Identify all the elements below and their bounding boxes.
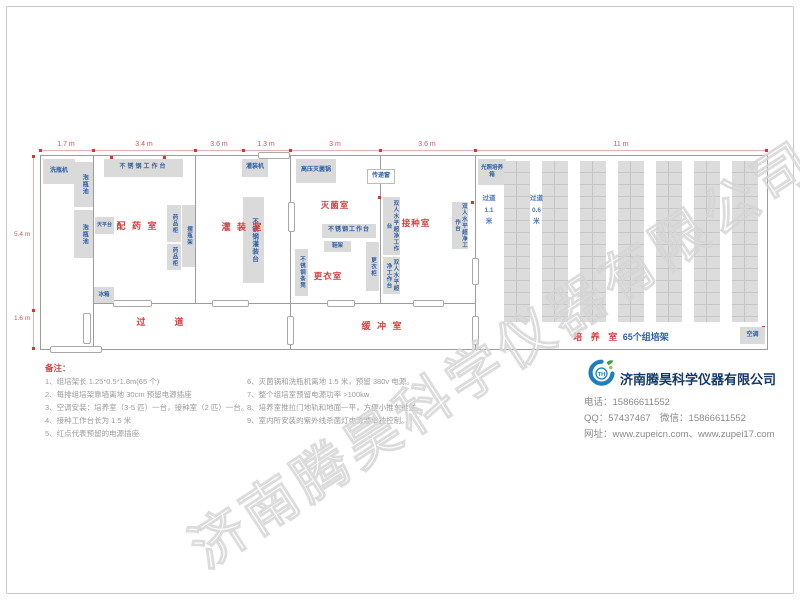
soaking-pool: 泡瓶池 — [74, 162, 93, 207]
steel-filling-table: 不锈钢灌装台 — [243, 197, 264, 283]
dimension-tick — [32, 309, 35, 312]
culture-rack — [542, 161, 568, 322]
locker: 更衣柜 — [366, 242, 379, 291]
room-label-changing: 更衣室 — [290, 270, 366, 282]
wall-right — [767, 155, 768, 350]
room-label-sterilize: 灭菌室 — [290, 199, 380, 211]
note-item: 6、灭菌锅和洗瓶机离地 1.5 米，预留 380v 电源。 — [247, 376, 414, 387]
floor-plan: 1.7 m 3.4 m 3.6 m 1.3 m 3 m 3.6 m 11 m 5… — [0, 0, 800, 600]
note-item: 4、接种工作台长为 1.5 米 — [45, 415, 131, 426]
dimension-tick — [32, 347, 35, 350]
steel-worktable: 不锈钢工作台 — [104, 159, 183, 177]
power-socket-dot — [471, 201, 474, 204]
room-label-prep: 配 药 室 — [93, 219, 182, 232]
top-dimension-line — [40, 150, 767, 151]
culture-rack-count: 65个组培架 — [623, 332, 669, 342]
room-label-inoculation: 接种室 — [380, 217, 452, 229]
culture-rack — [580, 161, 606, 322]
equipment-label: 摆瓶架 — [185, 226, 192, 246]
company-qq-wechat: QQ：57437467 微信：15866611552 — [584, 410, 746, 424]
room-label-culture: 培 养 室 65个组培架 — [475, 330, 767, 343]
dim-label: 3 m — [329, 141, 341, 148]
fridge: 冰箱 — [94, 287, 114, 303]
aisle-width-label: 过道 0.6 米 — [530, 193, 543, 228]
note-item: 1、组培架长 1.25*0.5*1.8m(65 个) — [45, 376, 159, 387]
equipment-label: 不锈钢工作台 — [119, 164, 167, 172]
company-website: 网址：www.zupeicn.com、www.zupei17.com — [584, 426, 775, 440]
wall-top — [40, 155, 768, 156]
door — [413, 300, 444, 307]
door — [212, 300, 249, 307]
light-incubator: 光照培养箱 — [478, 159, 506, 185]
dimension-tick — [194, 149, 197, 152]
note-item: 9、室内所安装的紫外线杀菌灯电源要单独控制。 — [247, 415, 409, 426]
wall-buffer — [290, 303, 475, 304]
bottle-washer: 洗瓶机 — [43, 159, 75, 184]
shoe-rack: 鞋架 — [324, 241, 351, 252]
dim-label: 11 m — [613, 141, 628, 148]
door — [113, 300, 152, 307]
culture-rack — [694, 161, 720, 322]
soaking-pool: 泡瓶池 — [74, 210, 93, 258]
bottle-rack: 摆瓶架 — [182, 205, 195, 267]
filling-machine: 灌装机 — [242, 159, 268, 177]
note-item: 8、培养室推拉门地轨和地面一平，方便小推车推送。 — [247, 402, 424, 413]
equipment-label: 洗瓶机 — [50, 168, 68, 176]
dimension-tick — [32, 155, 35, 158]
equipment-label: 药品柜 — [171, 247, 178, 267]
equipment-label: 高压灭菌锅 — [301, 167, 331, 175]
medicine-cabinet: 药品柜 — [167, 244, 181, 270]
dim-label: 3.4 m — [135, 141, 153, 148]
room-label-corridor: 过 道 — [40, 315, 290, 328]
equipment-label: 光照培养箱 — [480, 165, 504, 179]
note-item: 7、整个组培室预留电源功率 >100kw — [247, 389, 369, 400]
dimension-tick — [379, 149, 382, 152]
dim-label: 1.3 m — [257, 141, 275, 148]
equipment-label: 鞋架 — [332, 243, 343, 250]
room-label-buffer: 缓 冲 室 — [290, 319, 475, 332]
equipment-label: 不锈钢工作台 — [328, 227, 370, 235]
equipment-label: 灌装机 — [246, 164, 264, 172]
culture-rack — [618, 161, 644, 322]
dim-label: 1.6 m — [14, 315, 30, 322]
pass-through-window: 传递窗 — [367, 169, 395, 184]
dimension-tick — [474, 149, 477, 152]
culture-rack — [656, 161, 682, 322]
company-logo-icon: TH — [588, 359, 615, 388]
wall-bottom — [40, 349, 768, 350]
dim-label: 3.6 m — [210, 141, 228, 148]
equipment-label: 双人水平超净工作台 — [385, 257, 399, 294]
left-dimension-line — [33, 155, 34, 349]
equipment-label: 传递窗 — [372, 173, 390, 181]
note-item: 2、每排组培架靠墙离地 30cm 预留电源插座 — [45, 389, 192, 400]
laminar-flow-bench: 双人水平超净工作台 — [452, 202, 468, 249]
dim-label: 1.7 m — [57, 141, 75, 148]
dimension-tick — [242, 149, 245, 152]
door — [327, 300, 355, 307]
dim-label: 3.6 m — [418, 141, 436, 148]
dimension-tick — [765, 149, 768, 152]
svg-text:TH: TH — [598, 372, 606, 378]
dimension-tick — [92, 149, 95, 152]
aisle-width-label: 过道 1.1 米 — [482, 193, 496, 228]
culture-rack — [732, 161, 758, 322]
company-phone: 电话：15866611552 — [584, 394, 670, 408]
equipment-label: 更衣柜 — [369, 257, 376, 277]
note-item: 5、红点代表预留的电源插座 — [45, 428, 139, 439]
dimension-tick — [289, 149, 292, 152]
room-label-filling: 灌 装 室 — [195, 220, 290, 233]
door — [472, 258, 479, 285]
dim-label: 5.4 m — [14, 231, 30, 238]
equipment-label: 泡瓶池 — [80, 224, 88, 245]
laminar-flow-bench: 双人水平超净工作台 — [383, 257, 400, 294]
notes-title: 备注： — [45, 362, 71, 374]
dimension-tick — [39, 149, 42, 152]
door — [50, 346, 102, 353]
autoclave: 高压灭菌锅 — [296, 159, 336, 183]
equipment-label: 冰箱 — [98, 292, 109, 299]
culture-rack — [504, 161, 530, 322]
note-item: 3、空调安装：培养室（3-5 匹）一台，接种室（2 匹）一台。 — [45, 402, 248, 413]
steel-worktable: 不锈钢工作台 — [322, 224, 376, 238]
culture-room-name: 培 养 室 — [573, 332, 620, 342]
equipment-label: 双人水平超净工作台 — [453, 202, 467, 249]
equipment-label: 泡瓶池 — [80, 174, 88, 195]
door — [258, 152, 290, 159]
company-name: 济南腾昊科学仪器有限公司 — [620, 369, 776, 388]
